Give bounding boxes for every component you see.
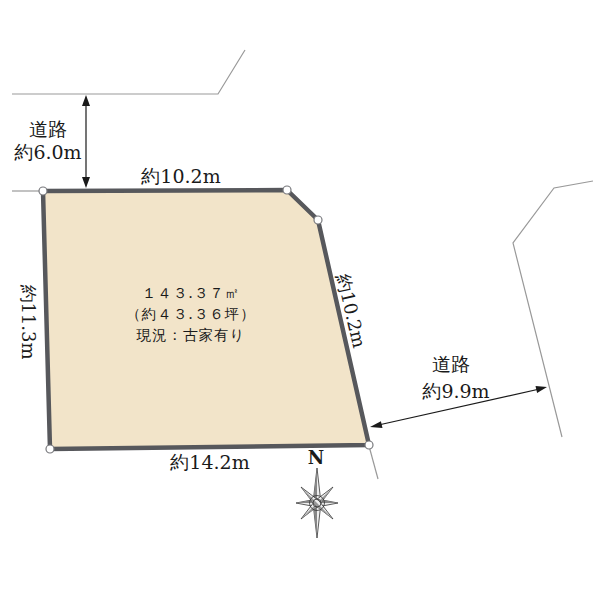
road-top-width-label: 約6.0m [14,142,81,163]
dimension-left-label: 約11.3m [18,284,38,359]
road-width-arrow-top [82,95,90,188]
road-boundary-right [513,181,593,437]
road-top-label: 道路 [29,119,67,140]
boundary-extension-bottom-right [369,446,378,479]
road-right-label: 道路 [432,354,470,375]
parcel-info-block: １４３.３７㎡ （約４３.３６坪） 現況：古家有り [126,283,256,346]
diagram-linework [0,0,600,600]
parcel-area-tsubo: （約４３.３６坪） [126,304,256,325]
parcel-status: 現況：古家有り [126,325,256,346]
vertex-bottom-right [365,441,373,449]
dimension-bottom-label: 約14.2m [170,452,249,473]
vertex-top-right [283,186,291,194]
vertex-bottom-left [46,445,54,453]
compass-north-label: N [308,447,324,468]
road-right-width-label: 約9.9m [422,381,489,402]
vertex-chamfer [314,216,322,224]
compass-rose-icon [296,468,338,538]
parcel-area-sqm: １４３.３７㎡ [126,283,256,304]
vertex-top-left [39,187,47,195]
dimension-top-label: 約10.2m [141,166,220,187]
land-plot-diagram: 道路 約6.0m 道路 約9.9m 約10.2m 約11.3m 約10.2m 約… [0,0,600,600]
road-boundary-top [12,50,245,94]
